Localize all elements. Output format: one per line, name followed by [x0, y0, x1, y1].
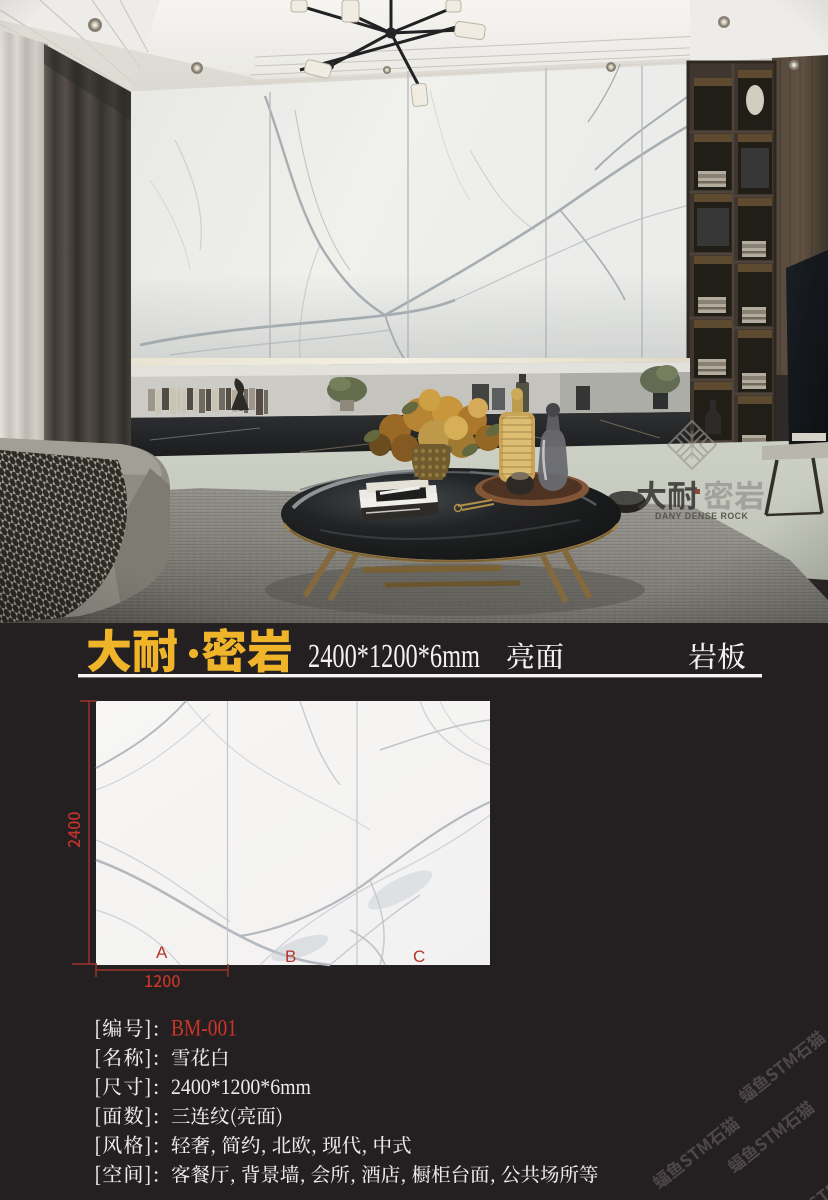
svg-text:2400*1200*6mm: 2400*1200*6mm [171, 1074, 311, 1099]
svg-text:BM-001: BM-001 [171, 1016, 237, 1041]
svg-text:A: A [156, 943, 168, 962]
svg-text:DANY DENSE ROCK: DANY DENSE ROCK [655, 511, 749, 521]
svg-text:2400*1200*6mm: 2400*1200*6mm [308, 638, 480, 675]
svg-text:B: B [285, 947, 296, 966]
svg-text:C: C [413, 947, 425, 966]
